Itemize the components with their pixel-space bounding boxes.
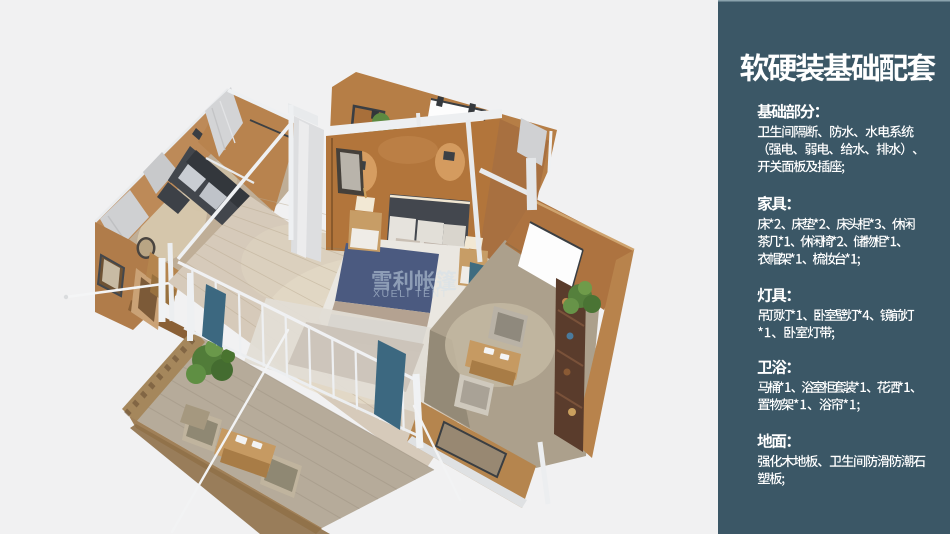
svg-text:XUELI TENT: XUELI TENT: [373, 288, 449, 300]
